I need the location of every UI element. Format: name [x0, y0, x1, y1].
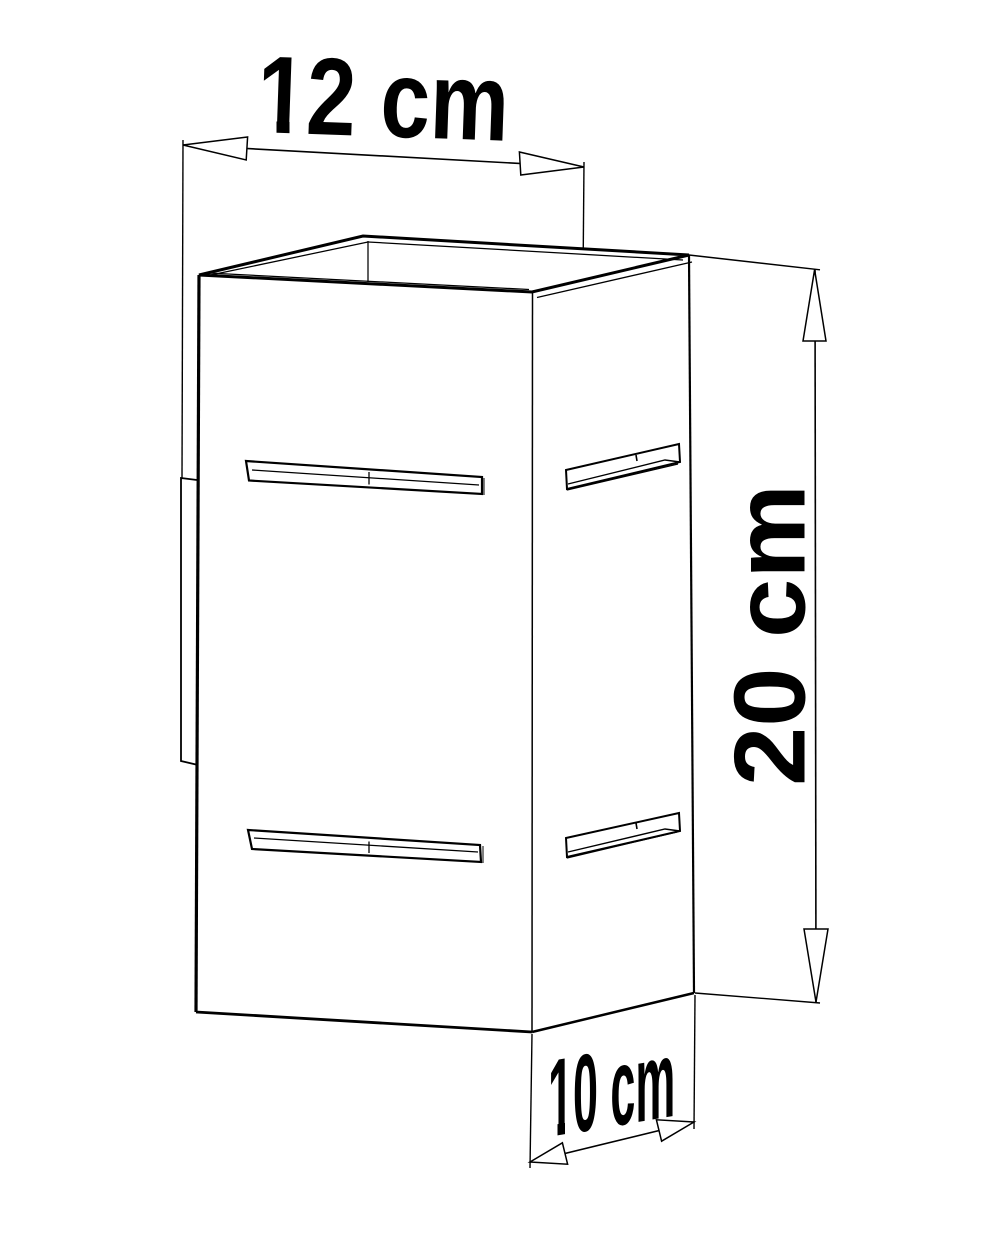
svg-text:10 cm: 10 cm	[548, 1018, 675, 1162]
svg-text:20 cm: 20 cm	[715, 484, 827, 786]
svg-text:12 cm: 12 cm	[255, 33, 511, 165]
